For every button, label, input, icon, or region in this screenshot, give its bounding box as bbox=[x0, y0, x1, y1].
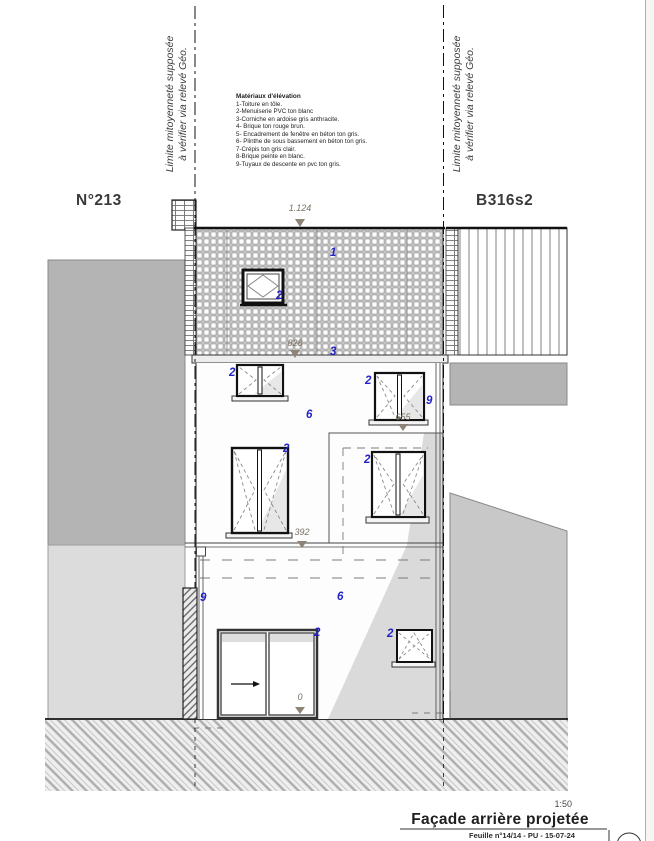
legend-item: 7-Crépis ton gris clair. bbox=[236, 146, 436, 154]
dimension-ground: 0 bbox=[278, 693, 322, 702]
drawing-sheet: Limite mitoyenneté supposée à vérifier v… bbox=[0, 0, 654, 841]
boundary-note-right-line2: à vérifier via relevé Géo. bbox=[464, 16, 477, 192]
material-label-window-b: 2 bbox=[365, 376, 371, 387]
cornice bbox=[192, 355, 448, 363]
neighbor-roof-right bbox=[446, 228, 567, 355]
parcel-ref-right: B316s2 bbox=[476, 192, 533, 210]
legend-item: 9-Tuyaux de descente en pvc ton gris. bbox=[236, 161, 436, 169]
material-label-downspout-r: 9 bbox=[426, 396, 432, 407]
chimney bbox=[172, 200, 196, 230]
dimension-cornice: 828 bbox=[273, 339, 317, 348]
material-label-window-d: 2 bbox=[364, 455, 370, 466]
sheet-footer-note: Feuille n°14/14 - PU - 15-07-24 bbox=[442, 831, 602, 840]
boundary-note-right-line1: Limite mitoyenneté supposée bbox=[451, 16, 464, 192]
material-label-downspout-l: 9 bbox=[200, 593, 206, 604]
dimension-ridge: 1.124 bbox=[278, 204, 322, 213]
material-label-plinth-gf: 6 bbox=[337, 592, 343, 603]
stamp-circle bbox=[617, 833, 641, 841]
window-door-first-floor bbox=[226, 448, 292, 538]
material-label-window-c: 2 bbox=[283, 444, 289, 455]
drawing-title: Façade arrière projetée bbox=[393, 811, 607, 829]
legend-item: 5- Encadrement de fenêtre en béton ton g… bbox=[236, 131, 436, 139]
ground bbox=[45, 719, 568, 791]
window-first-floor-right bbox=[366, 452, 429, 523]
main-roof bbox=[194, 228, 445, 355]
material-label-plinth-up: 6 bbox=[306, 410, 312, 421]
legend-item: 6- Plinthe de sous bassement en béton to… bbox=[236, 138, 436, 146]
material-label-roofwindow: 2 bbox=[276, 291, 282, 302]
legend-item: 8-Brique peinte en blanc. bbox=[236, 153, 436, 161]
legend-item: 2-Menuiserie PVC ton blanc bbox=[236, 108, 436, 116]
material-label-window-a: 2 bbox=[229, 368, 235, 379]
legend-item: 1-Toiture en tôle. bbox=[236, 101, 436, 109]
boundary-note-left-line2: à vérifier via relevé Géo. bbox=[177, 16, 190, 192]
material-label-cornice: 3 bbox=[330, 347, 336, 358]
dimension-floor: 392 bbox=[280, 528, 324, 537]
legend-item: 3-Corniche en ardoise gris anthracite. bbox=[236, 116, 436, 124]
house-number-left: N°213 bbox=[76, 192, 122, 210]
materials-legend: Matériaux d'élévation 1-Toiture en tôle.… bbox=[236, 93, 436, 168]
boundary-note-left-line1: Limite mitoyenneté supposée bbox=[164, 16, 177, 192]
drawing-scale: 1:50 bbox=[490, 799, 572, 809]
left-neighbor-building bbox=[48, 260, 185, 719]
page-edge bbox=[646, 0, 654, 841]
material-label-window-e: 2 bbox=[387, 629, 393, 640]
window-upper-left bbox=[232, 365, 288, 401]
legend-title: Matériaux d'élévation bbox=[236, 93, 436, 101]
material-label-slidingdoor: 2 bbox=[314, 628, 320, 639]
material-label-roof: 1 bbox=[330, 248, 336, 259]
boundary-note-left: Limite mitoyenneté supposée à vérifier v… bbox=[164, 16, 192, 192]
sliding-door bbox=[218, 630, 317, 718]
right-neighbor-building bbox=[450, 363, 567, 719]
dimension-sill: 655 bbox=[381, 413, 425, 422]
window-ground-right bbox=[392, 630, 435, 667]
dim-arrow-ridge-icon bbox=[295, 219, 305, 227]
boundary-note-right: Limite mitoyenneté supposée à vérifier v… bbox=[451, 16, 479, 192]
brick-pier bbox=[183, 588, 197, 719]
legend-item: 4- Brique ton rouge brun. bbox=[236, 123, 436, 131]
